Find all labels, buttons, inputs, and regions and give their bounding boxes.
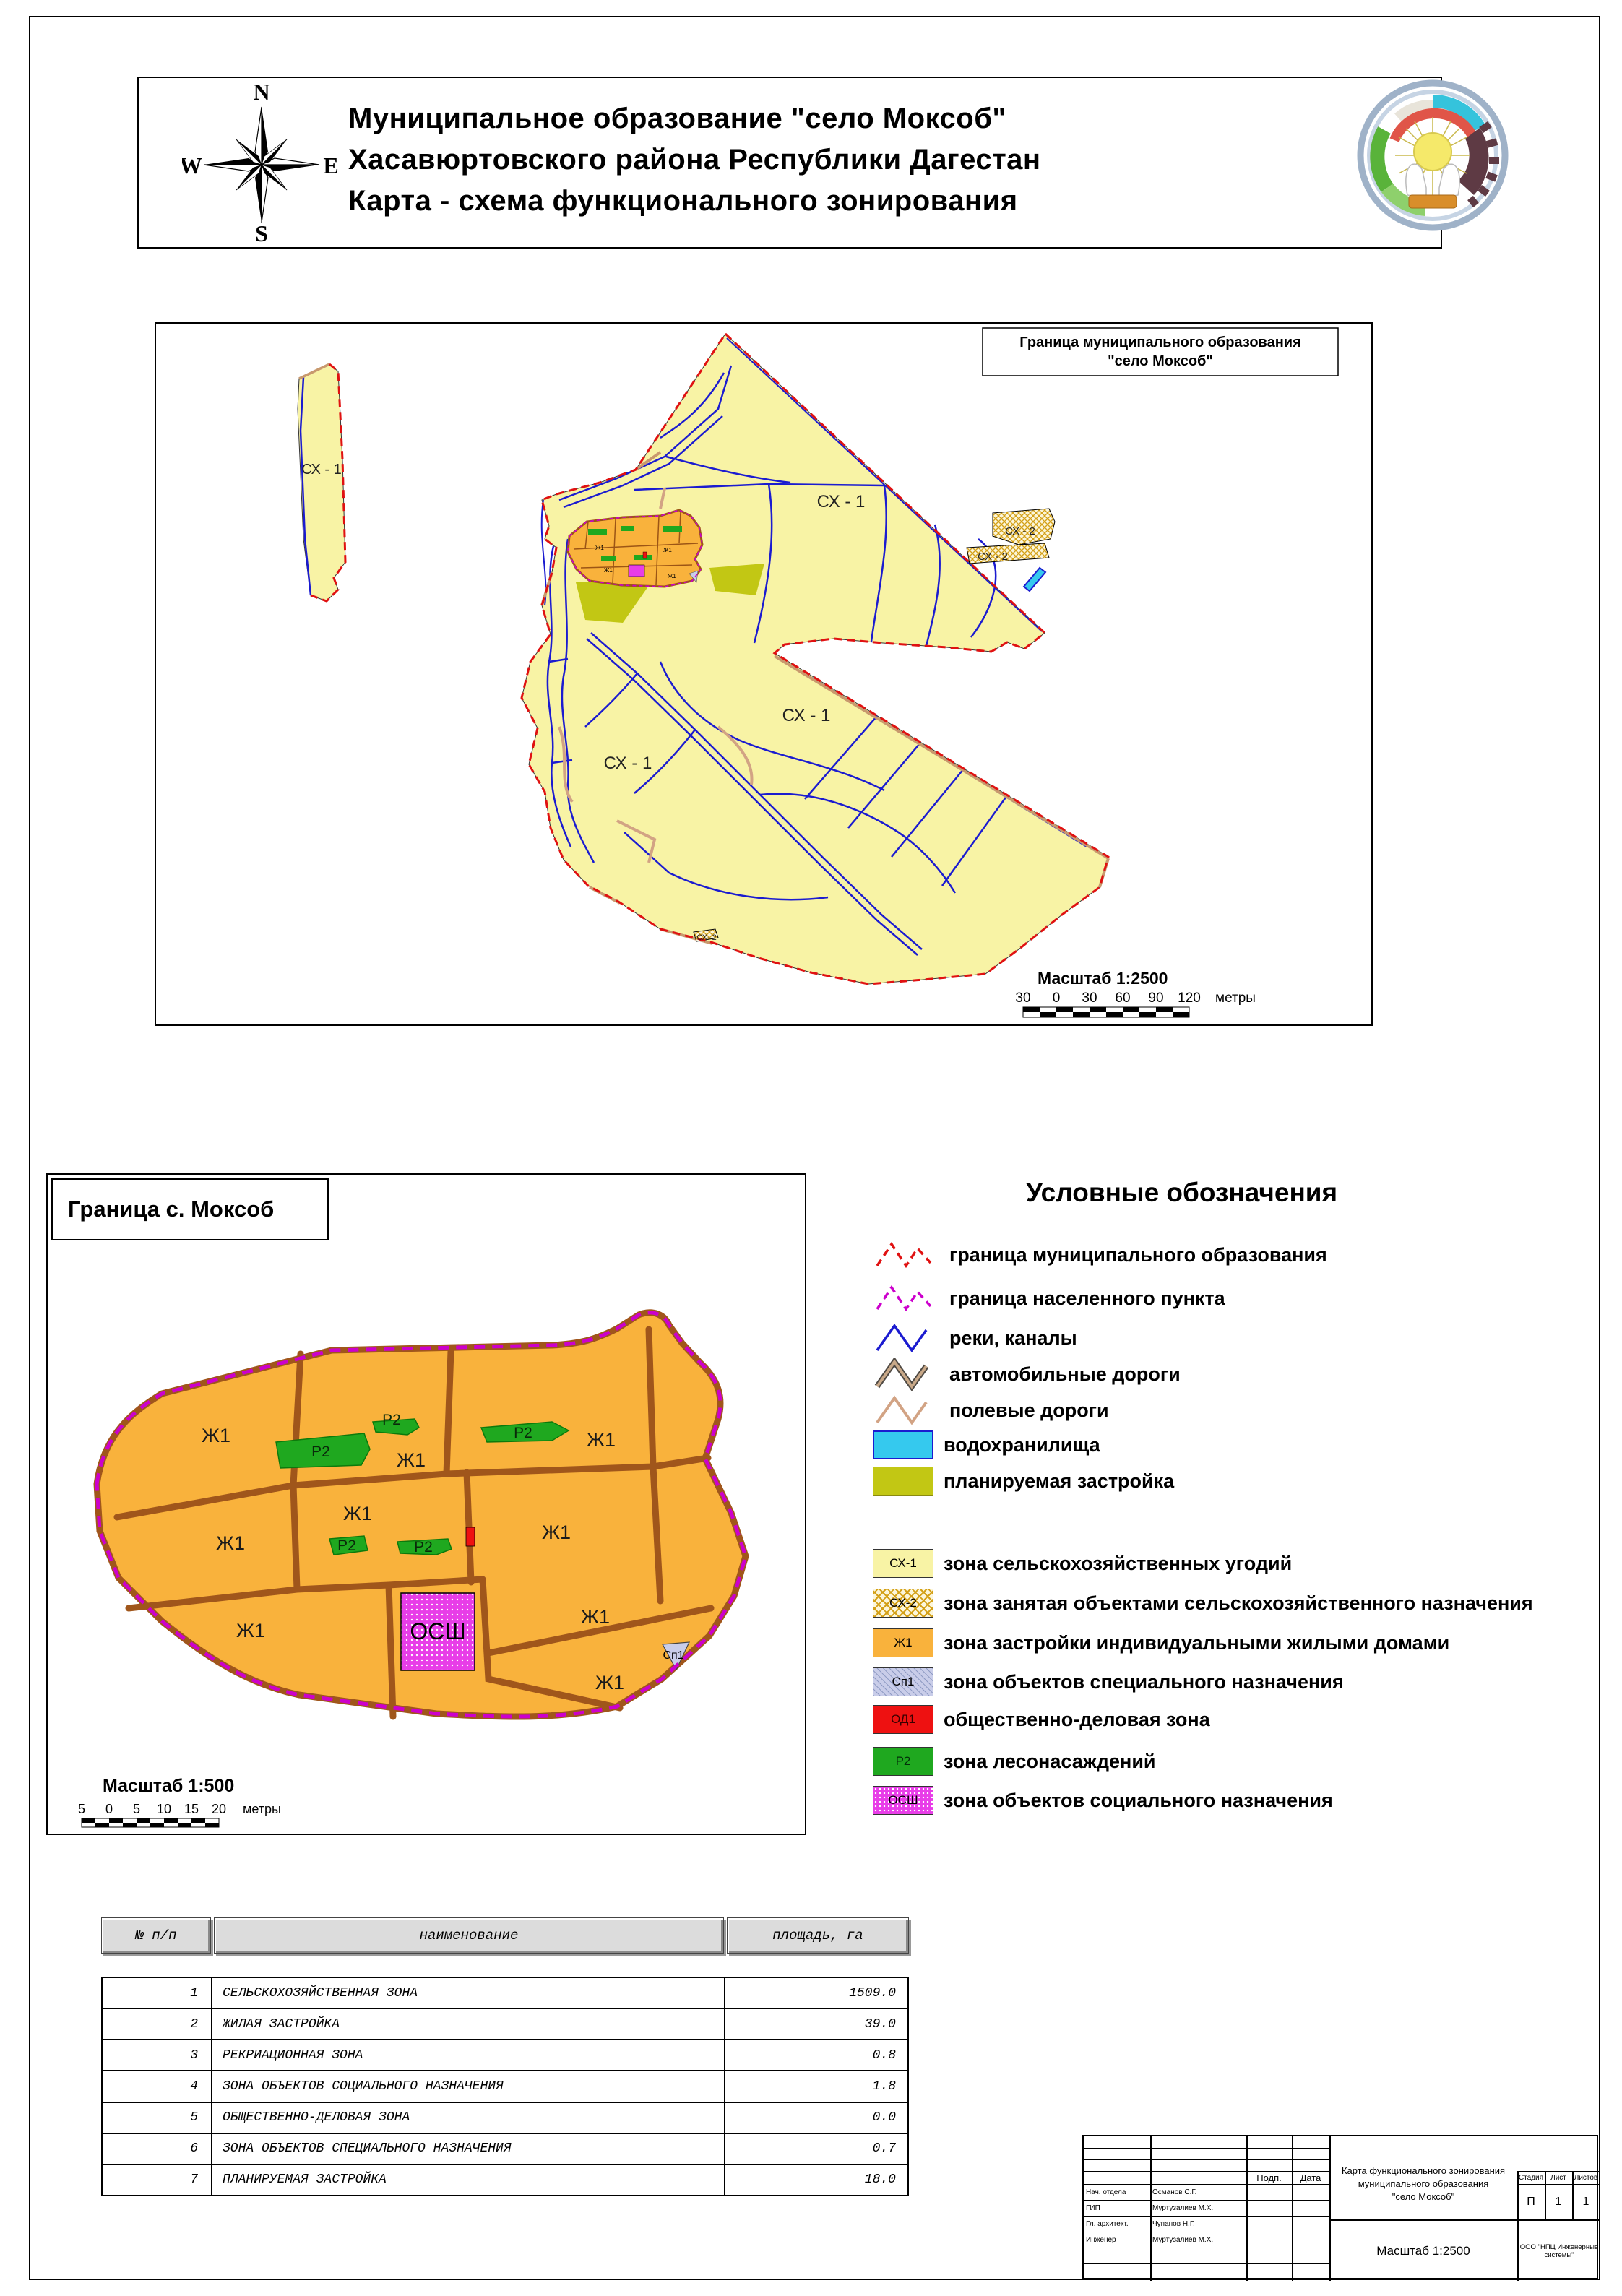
- main-map-scale-label: Масштаб 1:2500: [1038, 969, 1168, 988]
- legend-title: Условные обозначения: [1026, 1178, 1337, 1208]
- zh-label: Ж1: [542, 1522, 571, 1543]
- svg-text:5: 5: [133, 1802, 140, 1816]
- table-row: 1СЕЛЬСКОХОЗЯЙСТВЕННАЯ ЗОНА1509.0: [103, 1978, 907, 2009]
- reservoir-swatch: [873, 1430, 933, 1459]
- stamp-role-name: Муртузалиев М.Х.: [1152, 2232, 1245, 2248]
- page-title-line3: Карта - схема функционального зонировани…: [348, 181, 1345, 222]
- compass-n-label: N: [253, 81, 269, 105]
- legend-item-od1: ОД1 общественно-деловая зона: [873, 1702, 1602, 1737]
- p2-label: Р2: [414, 1539, 433, 1555]
- compass-w-label: W: [182, 152, 202, 178]
- p2-label: Р2: [311, 1443, 330, 1460]
- legend-item-municipal-boundary: граница муниципального образования: [873, 1238, 1602, 1272]
- svg-text:30: 30: [1082, 991, 1097, 1006]
- title-block: Подп. Дата Нач. отдела Османов С.Г. ГИП …: [1082, 2135, 1598, 2279]
- svg-text:метры: метры: [243, 1802, 281, 1816]
- stamp-data-header: Дата: [1292, 2171, 1329, 2184]
- zh-label: Ж1: [581, 1606, 610, 1628]
- svg-text:метры: метры: [1215, 991, 1256, 1006]
- osh-label: ОСШ: [410, 1618, 465, 1644]
- main-map-scale-bar: [1023, 1007, 1189, 1017]
- boundary-label-line1: Граница муниципального образования: [1019, 335, 1300, 350]
- boundary-label-line2: "село Моксоб": [1108, 353, 1213, 369]
- legend-item-sx1: СХ-1 зона сельскохозяйственных угодий: [873, 1546, 1602, 1581]
- table-header-area: площадь, га: [727, 1917, 909, 1954]
- table-row: 6ЗОНА ОБЪЕКТОВ СПЕЦИАЛЬНОГО НАЗНАЧЕНИЯ0.…: [103, 2134, 907, 2165]
- inset-zh-label: Ж1: [595, 545, 604, 551]
- svg-text:60: 60: [1115, 991, 1130, 1006]
- sx2-swatch: СХ-2: [873, 1589, 933, 1618]
- zone-sx1-northwest: [298, 364, 345, 601]
- zh-label: Ж1: [587, 1429, 616, 1451]
- stamp-role-label: Нач. отдела: [1086, 2184, 1149, 2200]
- field-road-icon: [873, 1394, 939, 1427]
- sx2-label-lower: СХ - 2: [978, 551, 1008, 563]
- settlement-boundary-icon: [873, 1282, 939, 1315]
- river-icon: [873, 1321, 939, 1355]
- zh-label: Ж1: [202, 1425, 230, 1446]
- zh-label: Ж1: [397, 1449, 426, 1471]
- village-scale-label: Масштаб 1:500: [103, 1776, 234, 1796]
- svg-text:0: 0: [1053, 991, 1061, 1006]
- sx1-swatch: СХ-1: [873, 1549, 933, 1578]
- table-row: 5ОБЩЕСТВЕННО-ДЕЛОВАЯ ЗОНА0.0: [103, 2103, 907, 2134]
- legend-item-zh1: Ж1 зона застройки индивидуальными жилыми…: [873, 1626, 1602, 1660]
- auto-road-icon: [873, 1358, 939, 1391]
- legend-item-planned: планируемая застройка: [873, 1464, 1602, 1498]
- stamp-role-name: Чупанов Н.Г.: [1152, 2216, 1245, 2232]
- organization-logo-icon: [1357, 79, 1509, 231]
- inset-zh-label: Ж1: [663, 547, 672, 553]
- od1-object: [466, 1527, 475, 1546]
- zh-label: Ж1: [595, 1672, 624, 1693]
- od1-swatch: ОД1: [873, 1705, 933, 1734]
- legend-item-settlement-boundary: граница населенного пункта: [873, 1281, 1602, 1316]
- main-map: Ж1 Ж1 Ж1 Ж1 СХ - 1 СХ - 1 СХ - 1 СХ - 1 …: [155, 322, 1373, 1026]
- p2-swatch: Р2: [873, 1747, 933, 1776]
- compass-s-label: S: [255, 220, 268, 244]
- sx1-label-southeast: СХ - 1: [782, 706, 831, 725]
- sx1-label-nw: СХ - 1: [301, 462, 342, 478]
- p2-label: Р2: [514, 1425, 532, 1441]
- inset-zh-label: Ж1: [668, 573, 676, 579]
- sx1-label-north: СХ - 1: [817, 492, 866, 512]
- sx2-label-upper: СХ - 2: [1005, 525, 1035, 538]
- osh-swatch: ОСШ: [873, 1786, 933, 1815]
- stamp-role-label: Инженер: [1086, 2232, 1149, 2248]
- svg-text:120: 120: [1178, 991, 1201, 1006]
- inset-zh-label: Ж1: [604, 567, 613, 574]
- zh-label: Ж1: [236, 1620, 265, 1641]
- legend-item-sp1: Сп1 зона объектов специального назначени…: [873, 1665, 1602, 1699]
- village-map-title: Граница с. Моксоб: [68, 1196, 274, 1222]
- legend-item-auto-roads: автомобильные дороги: [873, 1357, 1602, 1391]
- stamp-role-label: ГИП: [1086, 2200, 1149, 2216]
- compass-rose-icon: N S W E: [182, 81, 341, 244]
- zh-label: Ж1: [216, 1532, 245, 1554]
- area-table: 1СЕЛЬСКОХОЗЯЙСТВЕННАЯ ЗОНА1509.0 2ЖИЛАЯ …: [101, 1977, 909, 2196]
- svg-text:5: 5: [78, 1802, 85, 1816]
- sx1-label-southwest: СХ - 1: [604, 754, 652, 773]
- zh-label: Ж1: [343, 1503, 372, 1524]
- zh1-swatch: Ж1: [873, 1628, 933, 1657]
- stamp-role-label: Гл. архитект.: [1086, 2216, 1149, 2232]
- legend-item-sx2: СХ-2 зона занятая объектами сельскохозяй…: [873, 1586, 1602, 1620]
- svg-text:15: 15: [184, 1802, 199, 1816]
- main-map-scale-ticks: 30 0 30 60 90 120 метры: [1015, 991, 1256, 1006]
- table-row: 7ПЛАНИРУЕМАЯ ЗАСТРОЙКА18.0: [103, 2165, 907, 2195]
- legend-item-osh: ОСШ зона объектов социального назначения: [873, 1783, 1602, 1818]
- stamp-stage-value: П: [1517, 2185, 1545, 2219]
- sp1-label: Сп1: [663, 1649, 683, 1662]
- planned-development-east: [709, 564, 764, 595]
- page-title-line2: Хасавюртовского района Республики Дагест…: [348, 139, 1345, 181]
- p2-label: Р2: [382, 1412, 401, 1428]
- table-header-num: № п/п: [101, 1917, 211, 1954]
- reservoir: [1024, 568, 1045, 591]
- svg-text:30: 30: [1015, 991, 1030, 1006]
- stamp-stage-label: Стадия: [1517, 2171, 1545, 2184]
- village-scale-bar: [82, 1818, 219, 1827]
- stamp-sheet-value: 1: [1545, 2185, 1572, 2219]
- stamp-podp-header: Подп.: [1246, 2171, 1292, 2184]
- table-row: 4ЗОНА ОБЪЕКТОВ СОЦИАЛЬНОГО НАЗНАЧЕНИЯ1.8: [103, 2071, 907, 2102]
- legend-item-p2: Р2 зона лесонасаждений: [873, 1744, 1602, 1779]
- stamp-company: ООО "НПЦ Инженерные системы": [1519, 2221, 1600, 2281]
- legend-item-rivers: реки, каналы: [873, 1321, 1602, 1355]
- table-row: 2ЖИЛАЯ ЗАСТРОЙКА39.0: [103, 2009, 907, 2040]
- sp1-swatch: Сп1: [873, 1667, 933, 1696]
- svg-text:90: 90: [1148, 991, 1163, 1006]
- page-title-line1: Муниципальное образование "село Моксоб": [348, 98, 1345, 139]
- stamp-sheets-label: Листов: [1572, 2171, 1600, 2184]
- table-row: 3РЕКРИАЦИОННАЯ ЗОНА0.8: [103, 2040, 907, 2071]
- compass-e-label: E: [323, 152, 338, 178]
- settlement-inset: Ж1 Ж1 Ж1 Ж1: [568, 510, 702, 587]
- stamp-sheet-label: Лист: [1545, 2171, 1572, 2184]
- sx2-label-tip: СХ- 2: [696, 933, 717, 942]
- stamp-role-name: Муртузалиев М.Х.: [1152, 2200, 1245, 2216]
- stamp-sheets-value: 1: [1572, 2185, 1600, 2219]
- stamp-role-name: Османов С.Г.: [1152, 2184, 1245, 2200]
- stamp-scale: Масштаб 1:2500: [1329, 2221, 1517, 2281]
- municipal-boundary-icon: [873, 1238, 939, 1272]
- map-sheet: Муниципальное образование "село Моксоб" …: [0, 0, 1622, 2296]
- legend-item-reservoirs: водохранилища: [873, 1428, 1602, 1462]
- svg-text:20: 20: [212, 1802, 226, 1816]
- p2-label: Р2: [337, 1537, 356, 1554]
- stamp-doc-title: Карта функционального зонирования муници…: [1331, 2149, 1516, 2218]
- village-map: Ж1 Ж1 Ж1 Ж1 Ж1 Ж1 Ж1 Ж1 Ж1 Р2 Р2 Р2 Р2 Р…: [46, 1173, 806, 1835]
- table-header-name: наименование: [214, 1917, 724, 1954]
- legend-item-field-roads: полевые дороги: [873, 1393, 1602, 1428]
- planned-swatch: [873, 1467, 933, 1496]
- village-scale-ticks: 5 0 5 10 15 20 метры: [78, 1802, 281, 1816]
- svg-text:0: 0: [105, 1802, 113, 1816]
- page-title: Муниципальное образование "село Моксоб" …: [348, 98, 1345, 222]
- svg-text:10: 10: [157, 1802, 171, 1816]
